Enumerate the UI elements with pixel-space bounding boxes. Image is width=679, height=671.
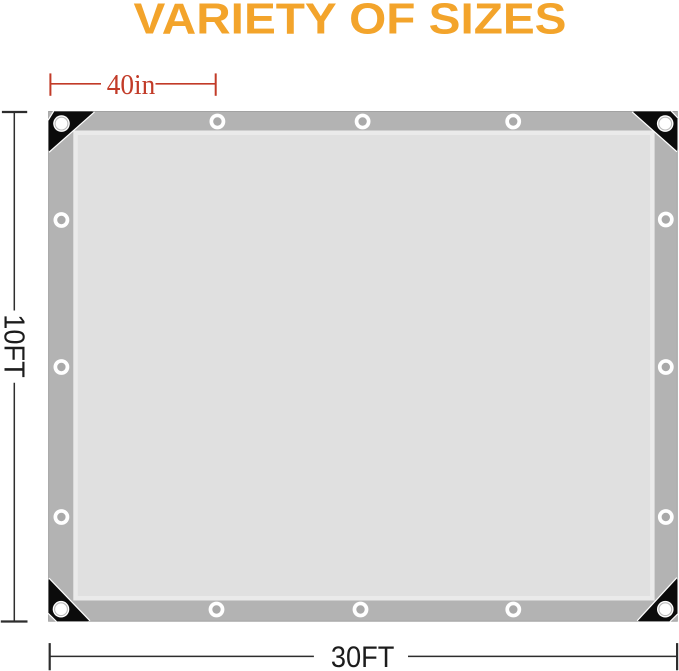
- svg-text:40in: 40in: [107, 70, 156, 101]
- svg-text:10FT: 10FT: [0, 314, 30, 378]
- svg-text:30FT: 30FT: [331, 641, 395, 671]
- svg-text:VARIETY OF SIZES: VARIETY OF SIZES: [134, 0, 567, 44]
